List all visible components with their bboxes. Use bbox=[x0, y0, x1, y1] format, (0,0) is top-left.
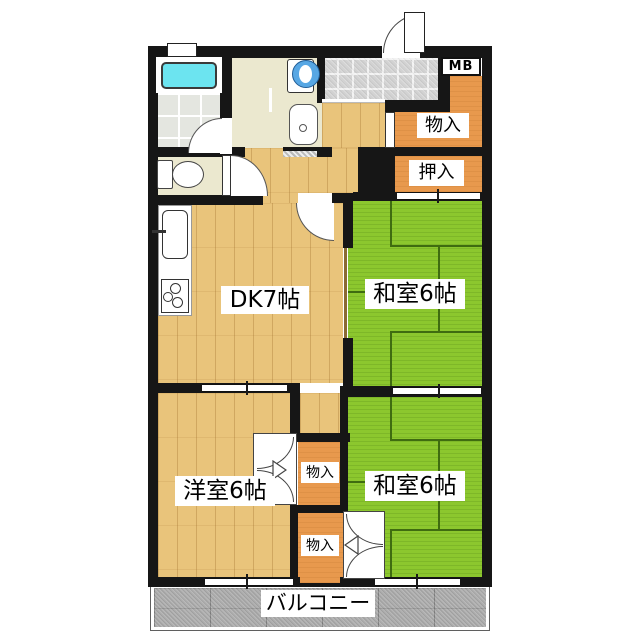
washroom-threshold bbox=[283, 151, 317, 157]
wall-under-tile bbox=[385, 100, 450, 112]
wall-storage-oshiire bbox=[385, 147, 482, 156]
label-middle-storage: 物入 bbox=[301, 462, 339, 483]
window-tick bbox=[246, 574, 248, 589]
tatami-line bbox=[390, 529, 482, 531]
lower-storage-wall-patch bbox=[300, 577, 340, 583]
sliding-door-tick bbox=[437, 189, 439, 203]
label-lower-storage: 物入 bbox=[301, 535, 339, 556]
sliding-door-tick bbox=[246, 381, 248, 395]
japanese-lower-label-text: 和室6帖 bbox=[373, 475, 457, 498]
toilet-door-leaf bbox=[222, 155, 231, 196]
room-label-western: 洋室6帖 bbox=[175, 476, 275, 506]
label-entrance-storage: 物入 bbox=[417, 113, 469, 138]
wall-storage-mid-low bbox=[290, 505, 343, 513]
wall-toilet-bottom bbox=[148, 195, 263, 205]
tatami-line bbox=[390, 397, 392, 441]
japanese-upper-label-text: 和室6帖 bbox=[373, 283, 457, 306]
wall-right bbox=[482, 46, 492, 587]
sliding-door-between-tatami bbox=[393, 387, 481, 395]
room-label-dk: DK7帖 bbox=[221, 286, 309, 314]
toilet-tank bbox=[157, 160, 173, 189]
dk-label-text: DK7帖 bbox=[230, 289, 300, 312]
hallway-floor-upper bbox=[322, 103, 385, 148]
entrance-storage-label-text: 物入 bbox=[425, 117, 461, 135]
room-label-japanese-upper: 和室6帖 bbox=[365, 279, 465, 309]
meter-box-label: MB bbox=[449, 59, 474, 74]
tatami-line bbox=[390, 331, 392, 386]
wall-storage-column-left bbox=[290, 505, 298, 580]
entrance-step-line bbox=[322, 99, 385, 103]
dk-nook-floor bbox=[300, 393, 343, 433]
closet-door-triangle-icon bbox=[344, 535, 359, 555]
sliding-door-tick bbox=[438, 384, 440, 398]
entrance-door-leaf bbox=[404, 12, 425, 53]
label-oshiire: 押入 bbox=[409, 160, 464, 186]
entrance-storage-door bbox=[385, 112, 395, 148]
wall-storage-column-right bbox=[340, 393, 348, 512]
washing-machine-drum bbox=[299, 65, 312, 83]
toilet-icon bbox=[172, 161, 204, 188]
floor-plan: MB DK7帖 和室6帖 和室6帖 bbox=[0, 0, 640, 640]
meter-box: MB bbox=[441, 57, 481, 76]
tatami-line bbox=[390, 245, 482, 247]
entrance-tile-floor bbox=[322, 58, 438, 103]
dk-tatami-opening bbox=[344, 248, 347, 338]
room-label-japanese-lower: 和室6帖 bbox=[365, 471, 465, 501]
oshiire-label-text: 押入 bbox=[419, 164, 455, 182]
balcony-label-text: バルコニー bbox=[266, 593, 371, 614]
wall-left-of-oshiire bbox=[358, 147, 395, 194]
dk-door-opening bbox=[298, 193, 332, 203]
sliding-door-dk-western bbox=[202, 384, 287, 392]
tatami-line bbox=[390, 331, 482, 333]
window-tick bbox=[416, 574, 418, 589]
washbasin-drain bbox=[299, 124, 307, 132]
washroom-floor-mark bbox=[269, 88, 272, 112]
kitchen-sink-icon bbox=[162, 210, 188, 259]
bathtub-icon bbox=[161, 62, 217, 89]
wall-dk-tatami-upper bbox=[343, 195, 353, 248]
tatami-line bbox=[390, 529, 392, 577]
lower-storage-label-text: 物入 bbox=[306, 539, 334, 553]
stove-burner bbox=[170, 283, 181, 294]
stove-burner bbox=[172, 297, 183, 308]
tatami-line bbox=[390, 200, 392, 247]
tatami-line bbox=[390, 439, 482, 441]
middle-storage-label-text: 物入 bbox=[306, 466, 334, 480]
room-label-balcony: バルコニー bbox=[261, 590, 375, 617]
bathroom-window bbox=[167, 43, 197, 57]
window-western-balcony bbox=[205, 578, 293, 586]
kitchen-faucet-icon bbox=[152, 230, 166, 233]
wall-left bbox=[148, 46, 158, 587]
western-label-text: 洋室6帖 bbox=[183, 480, 267, 503]
